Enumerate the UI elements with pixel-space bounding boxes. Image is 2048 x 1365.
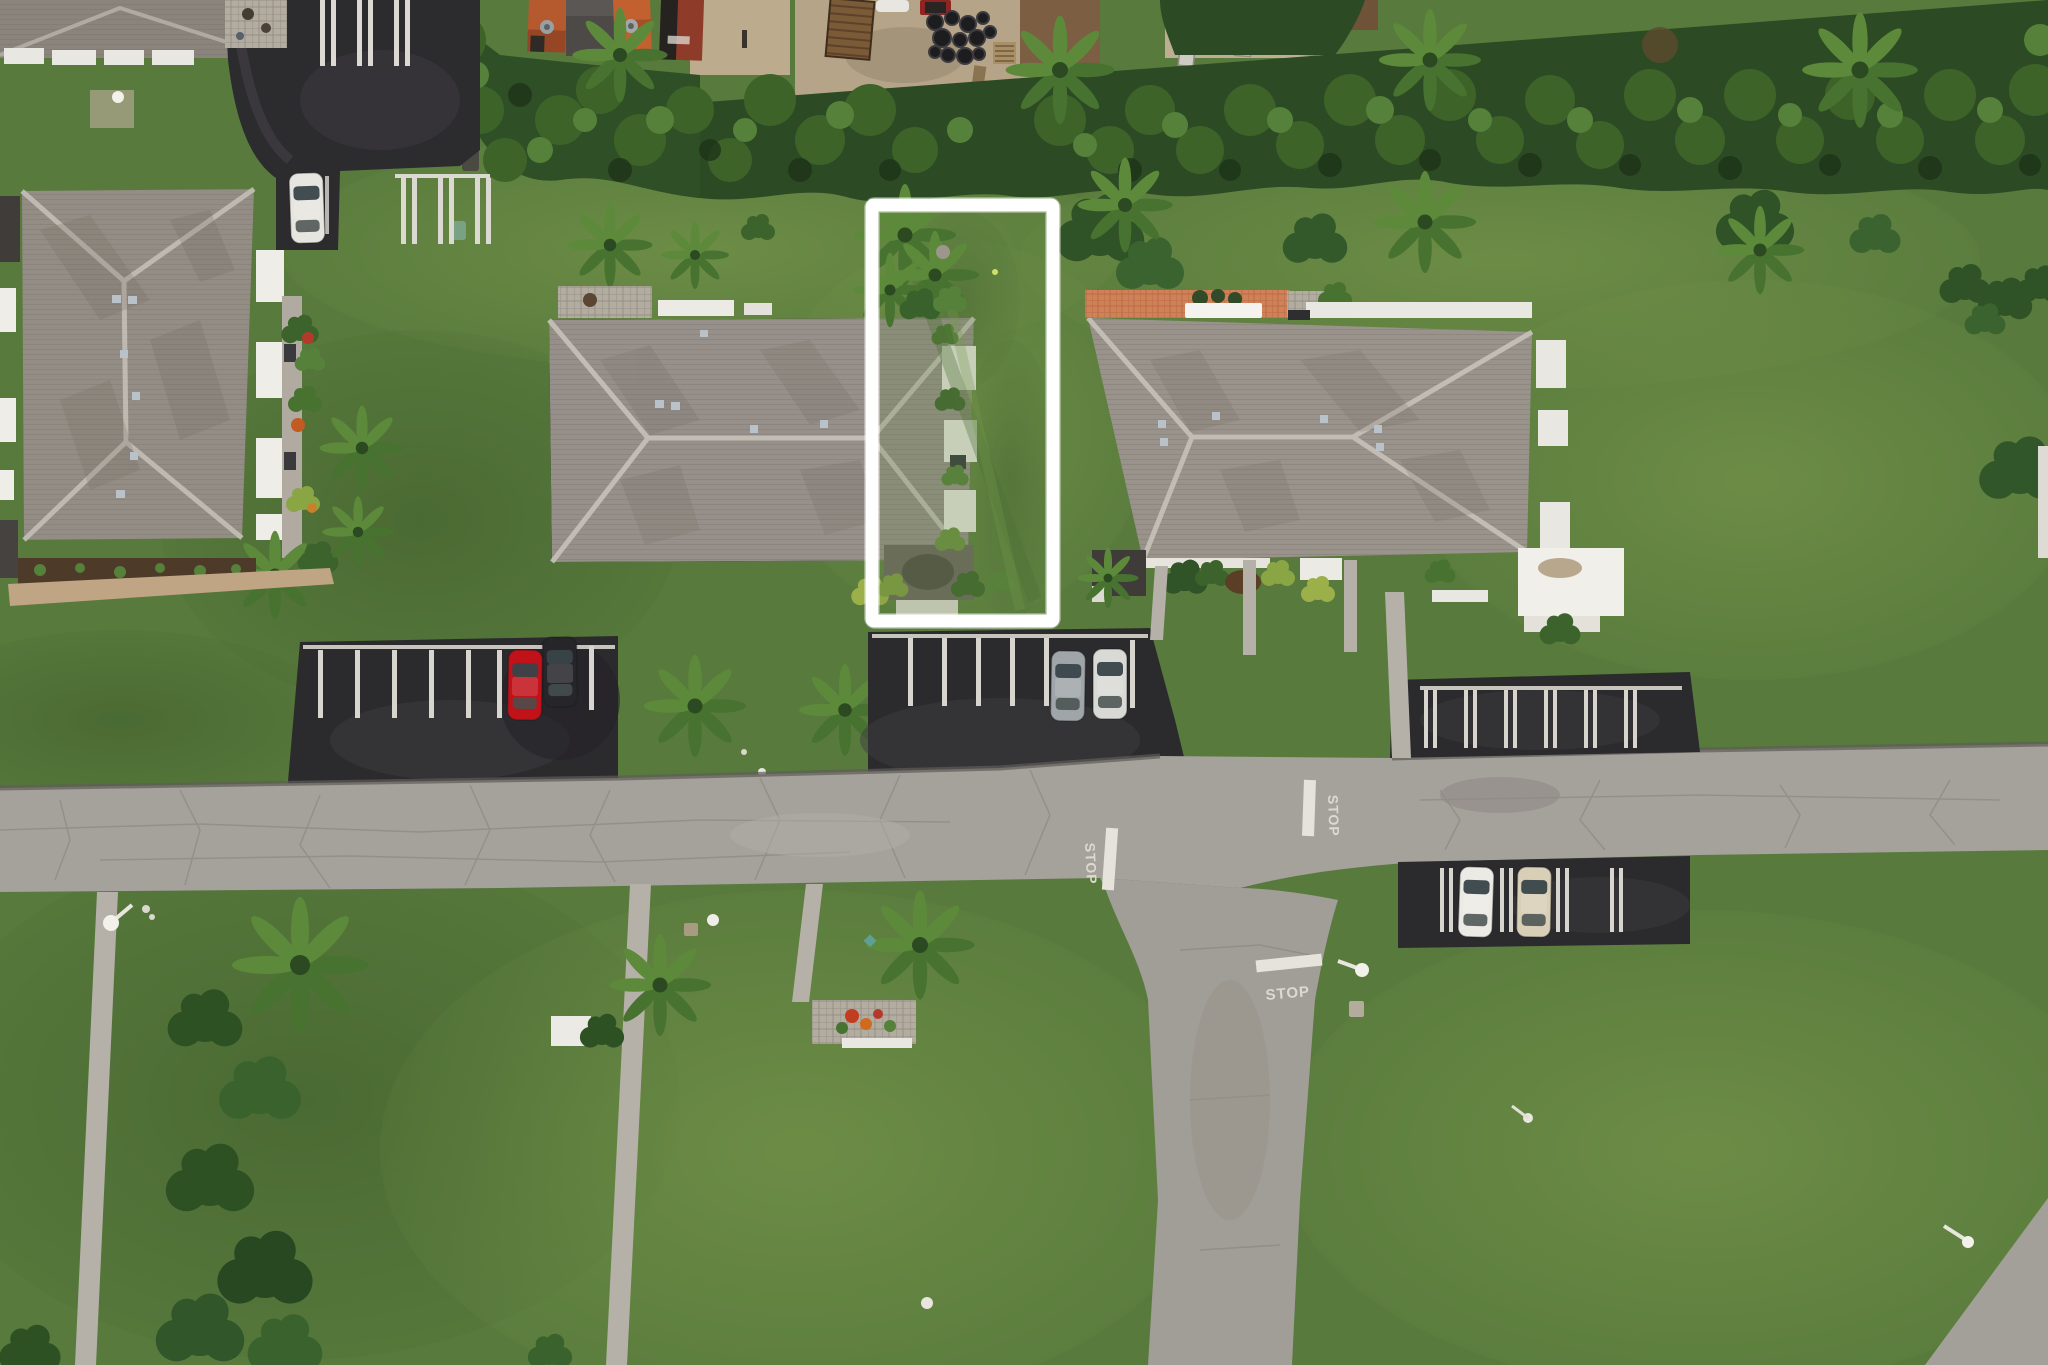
stop-marking-west: STOP — [1082, 842, 1100, 885]
carport-b2 — [658, 300, 734, 316]
beige-car-lot4 — [1516, 867, 1551, 938]
red-car — [507, 650, 542, 721]
patio-b2 — [558, 286, 652, 318]
highlighted-lot-garden — [853, 184, 1046, 616]
parking-lot-1 — [287, 636, 620, 793]
patio-bottom-center — [812, 1000, 916, 1048]
dark-suv — [542, 637, 577, 708]
aerial-photo-canvas: STOP STOP STOP — [0, 0, 2048, 1365]
white-car-lot4 — [1458, 866, 1494, 937]
red-shed — [659, 0, 704, 61]
white-truck-roof — [876, 0, 909, 12]
dark-porch-left-bottom — [0, 520, 18, 578]
stop-marking-east: STOP — [1325, 795, 1342, 837]
white-walkway-upper-right — [1432, 590, 1488, 602]
tire-pile — [927, 11, 996, 64]
carport-b3-top — [1306, 302, 1532, 318]
stop-bar-east — [1302, 780, 1316, 836]
white-canopy — [1185, 303, 1262, 318]
far-right-building-sliver — [2038, 446, 2048, 558]
wood-pallet — [993, 42, 1016, 64]
patio-top-left — [225, 0, 287, 48]
white-structure-bottom-left — [551, 1014, 624, 1048]
aerial-photo: STOP STOP STOP — [0, 0, 2048, 1365]
white-car-top-lot — [289, 172, 325, 243]
silver-car — [1050, 651, 1085, 722]
carports-right-edge — [256, 250, 284, 540]
dark-porch-left-top — [0, 196, 20, 262]
white-car-lot2 — [1093, 649, 1127, 719]
orange-shed-1 — [527, 0, 567, 53]
parking-lot-lower-right — [1398, 856, 1690, 948]
